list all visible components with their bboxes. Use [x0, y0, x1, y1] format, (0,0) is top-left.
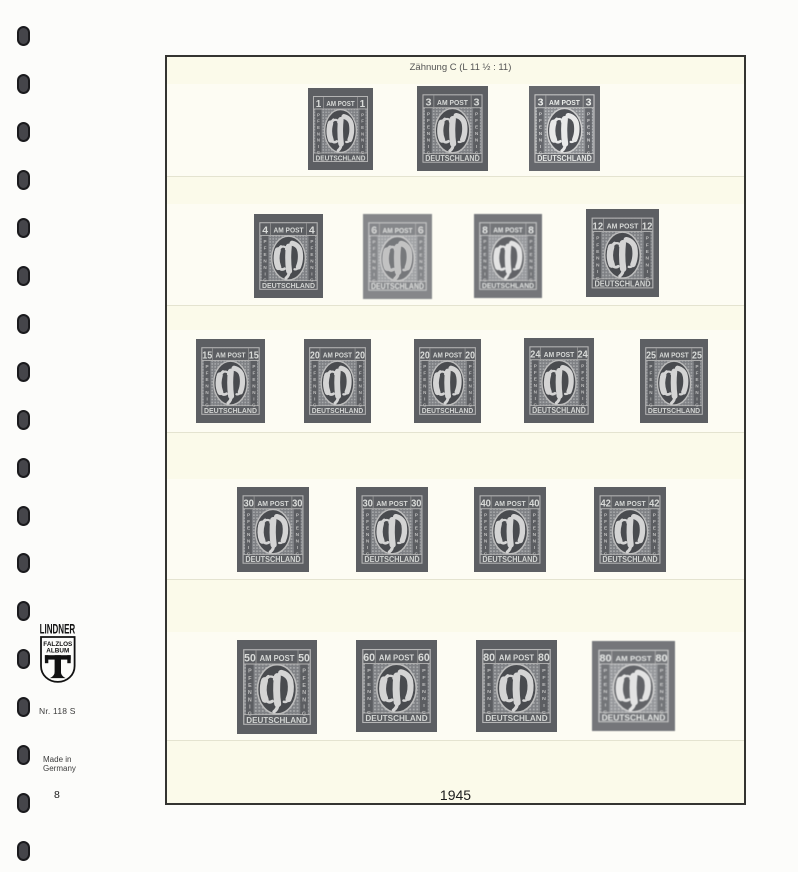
svg-text:3: 3 — [426, 97, 432, 109]
svg-text:LINDNER: LINDNER — [40, 622, 76, 636]
svg-text:80: 80 — [656, 653, 668, 664]
svg-text:30: 30 — [362, 499, 373, 510]
svg-text:6: 6 — [418, 225, 424, 237]
svg-text:4: 4 — [262, 225, 268, 236]
svg-text:42: 42 — [600, 499, 611, 510]
svg-text:20: 20 — [310, 350, 320, 361]
svg-text:25: 25 — [646, 350, 656, 361]
svg-text:30: 30 — [292, 499, 303, 510]
svg-text:20: 20 — [355, 350, 365, 361]
svg-text:50: 50 — [244, 653, 256, 665]
svg-text:3: 3 — [538, 97, 544, 109]
svg-text:50: 50 — [298, 653, 310, 665]
svg-text:8: 8 — [482, 225, 488, 236]
svg-text:30: 30 — [411, 499, 422, 510]
svg-text:1: 1 — [316, 99, 322, 110]
svg-text:24: 24 — [530, 350, 541, 361]
svg-text:60: 60 — [418, 653, 430, 665]
svg-text:42: 42 — [649, 499, 660, 510]
svg-text:20: 20 — [420, 350, 430, 361]
svg-text:15: 15 — [202, 350, 213, 361]
svg-text:80: 80 — [483, 653, 495, 665]
svg-text:24: 24 — [578, 350, 589, 361]
svg-text:4: 4 — [309, 225, 315, 236]
svg-text:25: 25 — [692, 350, 702, 361]
svg-text:80: 80 — [538, 653, 550, 665]
svg-text:20: 20 — [465, 350, 475, 361]
svg-text:12: 12 — [642, 221, 653, 232]
svg-text:40: 40 — [529, 499, 540, 510]
svg-text:6: 6 — [371, 225, 377, 237]
svg-text:12: 12 — [593, 221, 604, 232]
svg-text:80: 80 — [599, 653, 611, 664]
svg-text:ALBUM: ALBUM — [46, 648, 69, 655]
svg-text:40: 40 — [480, 499, 491, 510]
svg-text:30: 30 — [243, 499, 254, 510]
svg-text:3: 3 — [473, 97, 479, 109]
svg-text:1: 1 — [360, 99, 366, 110]
svg-text:15: 15 — [249, 350, 260, 361]
svg-text:60: 60 — [363, 653, 375, 665]
svg-text:8: 8 — [528, 225, 534, 236]
svg-text:3: 3 — [585, 97, 591, 109]
